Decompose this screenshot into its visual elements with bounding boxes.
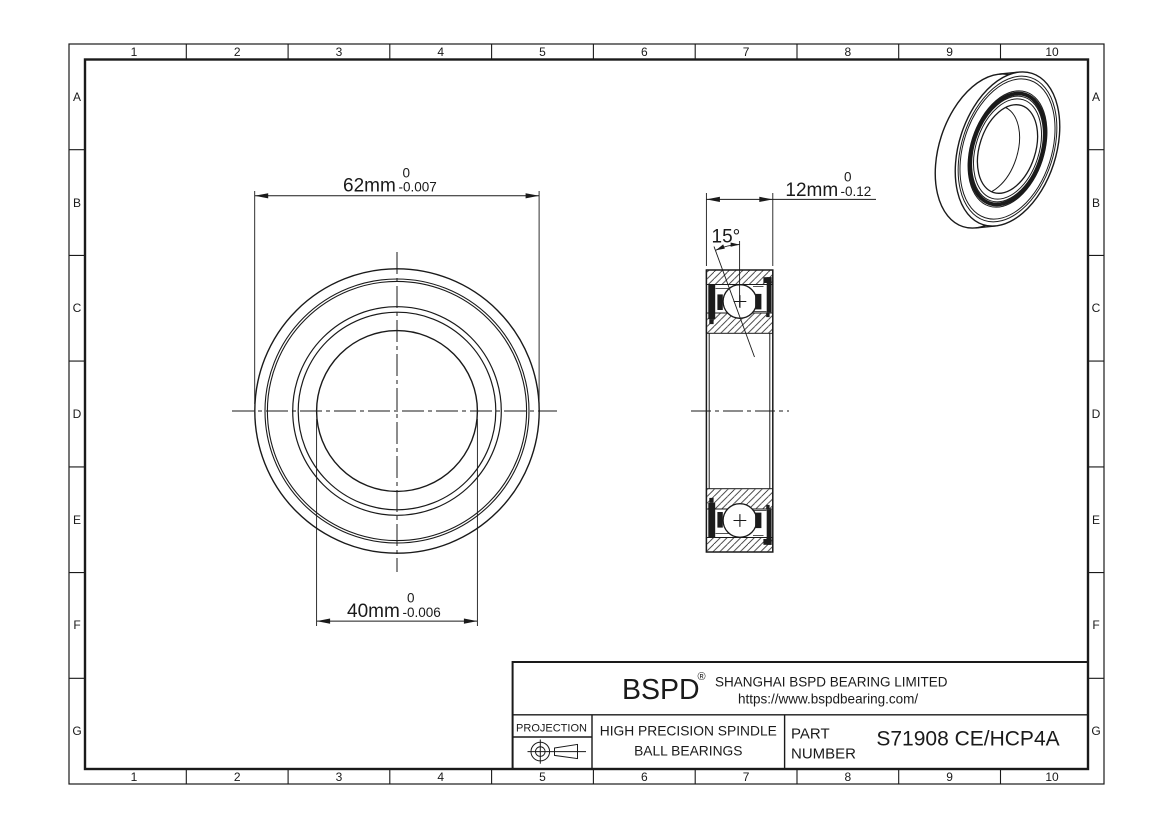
svg-text:5: 5 (539, 45, 546, 59)
svg-text:-0.006: -0.006 (403, 605, 441, 620)
svg-text:G: G (72, 724, 81, 738)
svg-text:1: 1 (131, 770, 138, 784)
svg-text:E: E (73, 513, 81, 527)
svg-text:BSPD: BSPD (622, 674, 700, 706)
svg-text:https://www.bspdbearing.com/: https://www.bspdbearing.com/ (738, 692, 918, 707)
svg-text:12mm: 12mm (785, 180, 838, 201)
svg-text:4: 4 (437, 770, 444, 784)
svg-text:B: B (1092, 196, 1100, 210)
svg-text:10: 10 (1045, 770, 1059, 784)
svg-text:6: 6 (641, 45, 648, 59)
svg-text:3: 3 (336, 45, 343, 59)
svg-text:E: E (1092, 513, 1100, 527)
svg-text:A: A (73, 90, 81, 104)
svg-text:8: 8 (845, 45, 852, 59)
svg-text:G: G (1091, 724, 1100, 738)
svg-text:PART: PART (791, 726, 830, 743)
svg-text:0: 0 (407, 591, 415, 606)
svg-text:40mm: 40mm (347, 601, 400, 622)
svg-text:62mm: 62mm (343, 176, 396, 197)
svg-text:9: 9 (946, 45, 953, 59)
svg-text:B: B (73, 196, 81, 210)
svg-text:3: 3 (336, 770, 343, 784)
svg-text:SHANGHAI BSPD BEARING LIMITED: SHANGHAI BSPD BEARING LIMITED (715, 675, 948, 690)
svg-text:15°: 15° (712, 227, 741, 248)
svg-text:BALL BEARINGS: BALL BEARINGS (634, 744, 742, 759)
svg-text:C: C (73, 301, 82, 315)
svg-text:7: 7 (743, 770, 750, 784)
svg-text:S71908 CE/HCP4A: S71908 CE/HCP4A (876, 728, 1059, 751)
svg-text:0: 0 (403, 166, 411, 181)
svg-text:2: 2 (234, 770, 241, 784)
svg-text:0: 0 (844, 170, 852, 185)
svg-text:F: F (73, 618, 80, 632)
svg-text:®: ® (698, 671, 706, 683)
svg-text:F: F (1092, 618, 1099, 632)
svg-text:PROJECTION: PROJECTION (516, 723, 587, 735)
svg-text:A: A (1092, 90, 1100, 104)
svg-text:5: 5 (539, 770, 546, 784)
svg-text:10: 10 (1045, 45, 1059, 59)
svg-text:8: 8 (845, 770, 852, 784)
svg-text:NUMBER: NUMBER (791, 746, 856, 763)
svg-text:D: D (1092, 407, 1101, 421)
svg-text:-0.007: -0.007 (399, 180, 437, 195)
svg-text:6: 6 (641, 770, 648, 784)
svg-text:HIGH PRECISION SPINDLE: HIGH PRECISION SPINDLE (600, 724, 777, 739)
svg-text:4: 4 (437, 45, 444, 59)
svg-text:-0.12: -0.12 (841, 184, 872, 199)
svg-text:D: D (73, 407, 82, 421)
svg-text:C: C (1092, 301, 1101, 315)
svg-text:7: 7 (743, 45, 750, 59)
svg-text:9: 9 (946, 770, 953, 784)
svg-text:1: 1 (131, 45, 138, 59)
svg-text:2: 2 (234, 45, 241, 59)
